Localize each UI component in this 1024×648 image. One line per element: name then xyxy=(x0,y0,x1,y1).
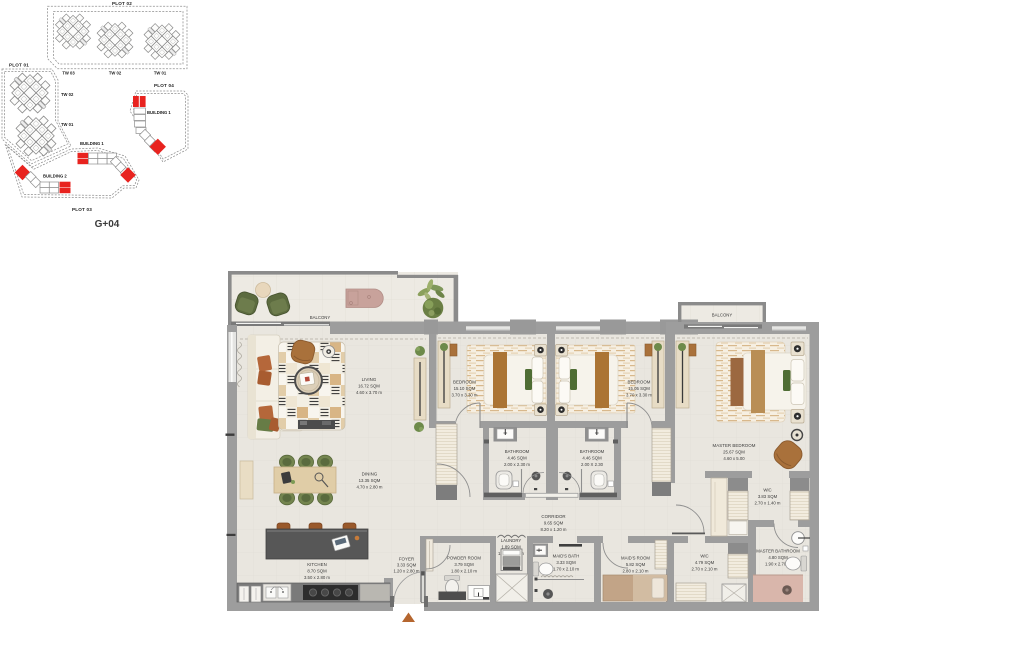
svg-text:BEDROOM: BEDROOM xyxy=(453,380,476,385)
svg-text:3.70 x 3.30 m: 3.70 x 3.30 m xyxy=(451,393,477,398)
svg-text:MAID'S ROOM: MAID'S ROOM xyxy=(621,556,650,561)
svg-text:PLOT 02: PLOT 02 xyxy=(112,1,132,6)
svg-text:5.82 SQM: 5.82 SQM xyxy=(626,562,646,567)
svg-text:3.70 x 3.30 m: 3.70 x 3.30 m xyxy=(626,393,652,398)
svg-text:BALCONY: BALCONY xyxy=(712,313,733,318)
svg-text:TW 02: TW 02 xyxy=(109,71,122,76)
svg-text:TW 03: TW 03 xyxy=(62,71,75,76)
svg-text:25.67 SQM: 25.67 SQM xyxy=(723,450,745,455)
svg-text:3.33 SQM: 3.33 SQM xyxy=(397,563,417,568)
svg-text:MASTER BATHROOM: MASTER BATHROOM xyxy=(756,549,800,554)
svg-text:WIC: WIC xyxy=(700,554,708,559)
svg-text:4.46 SQM: 4.46 SQM xyxy=(582,456,602,461)
svg-text:1.80 x 2.10 m: 1.80 x 2.10 m xyxy=(451,569,477,574)
svg-text:CORRIDOR: CORRIDOR xyxy=(541,514,565,519)
svg-text:KITCHEN: KITCHEN xyxy=(307,562,327,567)
svg-text:BALCONY: BALCONY xyxy=(310,315,331,320)
svg-text:4.60 x 3.70 m: 4.60 x 3.70 m xyxy=(356,390,382,395)
svg-text:BATHROOM: BATHROOM xyxy=(580,449,605,454)
svg-text:4.79 SQM: 4.79 SQM xyxy=(695,560,715,565)
svg-text:4.70 x 2.80 m: 4.70 x 2.80 m xyxy=(356,485,382,490)
svg-text:9.65 SQM: 9.65 SQM xyxy=(544,521,564,526)
svg-text:4.80 SQM: 4.80 SQM xyxy=(768,555,788,560)
svg-text:8.70 SQM: 8.70 SQM xyxy=(307,569,327,574)
svg-text:TW 01: TW 01 xyxy=(61,122,74,127)
svg-text:2.80 x 2.10 m: 2.80 x 2.10 m xyxy=(622,569,648,574)
svg-text:2.00 X 2.30: 2.00 X 2.30 xyxy=(581,462,604,467)
svg-text:2.70 x 2.10 m: 2.70 x 2.10 m xyxy=(691,567,717,572)
svg-text:13.35 SQM: 13.35 SQM xyxy=(359,478,381,483)
svg-text:1.70 x 2.10 m: 1.70 x 2.10 m xyxy=(553,567,579,572)
svg-text:8.20 x 1.20 m: 8.20 x 1.20 m xyxy=(540,527,566,532)
svg-text:DINING: DINING xyxy=(362,472,378,477)
svg-text:BATHROOM: BATHROOM xyxy=(505,449,530,454)
svg-text:15.05 SQM: 15.05 SQM xyxy=(628,386,650,391)
svg-text:4.60 x 5.00: 4.60 x 5.00 xyxy=(723,456,745,461)
svg-text:LIVING: LIVING xyxy=(362,377,377,382)
svg-text:PLOT 01: PLOT 01 xyxy=(9,63,29,68)
svg-text:POWDER ROOM: POWDER ROOM xyxy=(447,556,481,561)
svg-text:BUILDING 2: BUILDING 2 xyxy=(43,174,67,179)
svg-text:3.79 SQM: 3.79 SQM xyxy=(454,562,474,567)
svg-text:2.00 x 2.30 m: 2.00 x 2.30 m xyxy=(504,462,530,467)
svg-text:BUILDING 1: BUILDING 1 xyxy=(147,110,171,115)
svg-text:MAID'S BATH: MAID'S BATH xyxy=(553,554,580,559)
svg-text:3.50 x 2.80 m: 3.50 x 2.80 m xyxy=(304,575,330,580)
svg-text:TW 01: TW 01 xyxy=(154,71,167,76)
svg-text:FOYER: FOYER xyxy=(399,557,414,562)
svg-text:TW 02: TW 02 xyxy=(61,92,74,97)
svg-text:LAUNDRY: LAUNDRY xyxy=(501,538,522,543)
svg-text:PLOT 03: PLOT 03 xyxy=(72,207,92,212)
svg-text:15.10 SQM: 15.10 SQM xyxy=(454,386,476,391)
svg-text:4.46 SQM: 4.46 SQM xyxy=(507,456,527,461)
svg-text:PLOT 04: PLOT 04 xyxy=(154,83,174,88)
svg-text:16.72 SQM: 16.72 SQM xyxy=(358,384,380,389)
svg-text:BUILDING 1: BUILDING 1 xyxy=(80,141,104,146)
svg-text:MASTER BEDROOM: MASTER BEDROOM xyxy=(713,443,756,448)
svg-text:2.70 x 1.40 m: 2.70 x 1.40 m xyxy=(754,501,780,506)
svg-text:G+04: G+04 xyxy=(95,219,120,230)
svg-text:WIC: WIC xyxy=(763,488,771,493)
svg-text:3.83 SQM: 3.83 SQM xyxy=(758,494,778,499)
svg-text:BEDROOM: BEDROOM xyxy=(627,380,650,385)
svg-text:3.33 SQM: 3.33 SQM xyxy=(556,560,576,565)
